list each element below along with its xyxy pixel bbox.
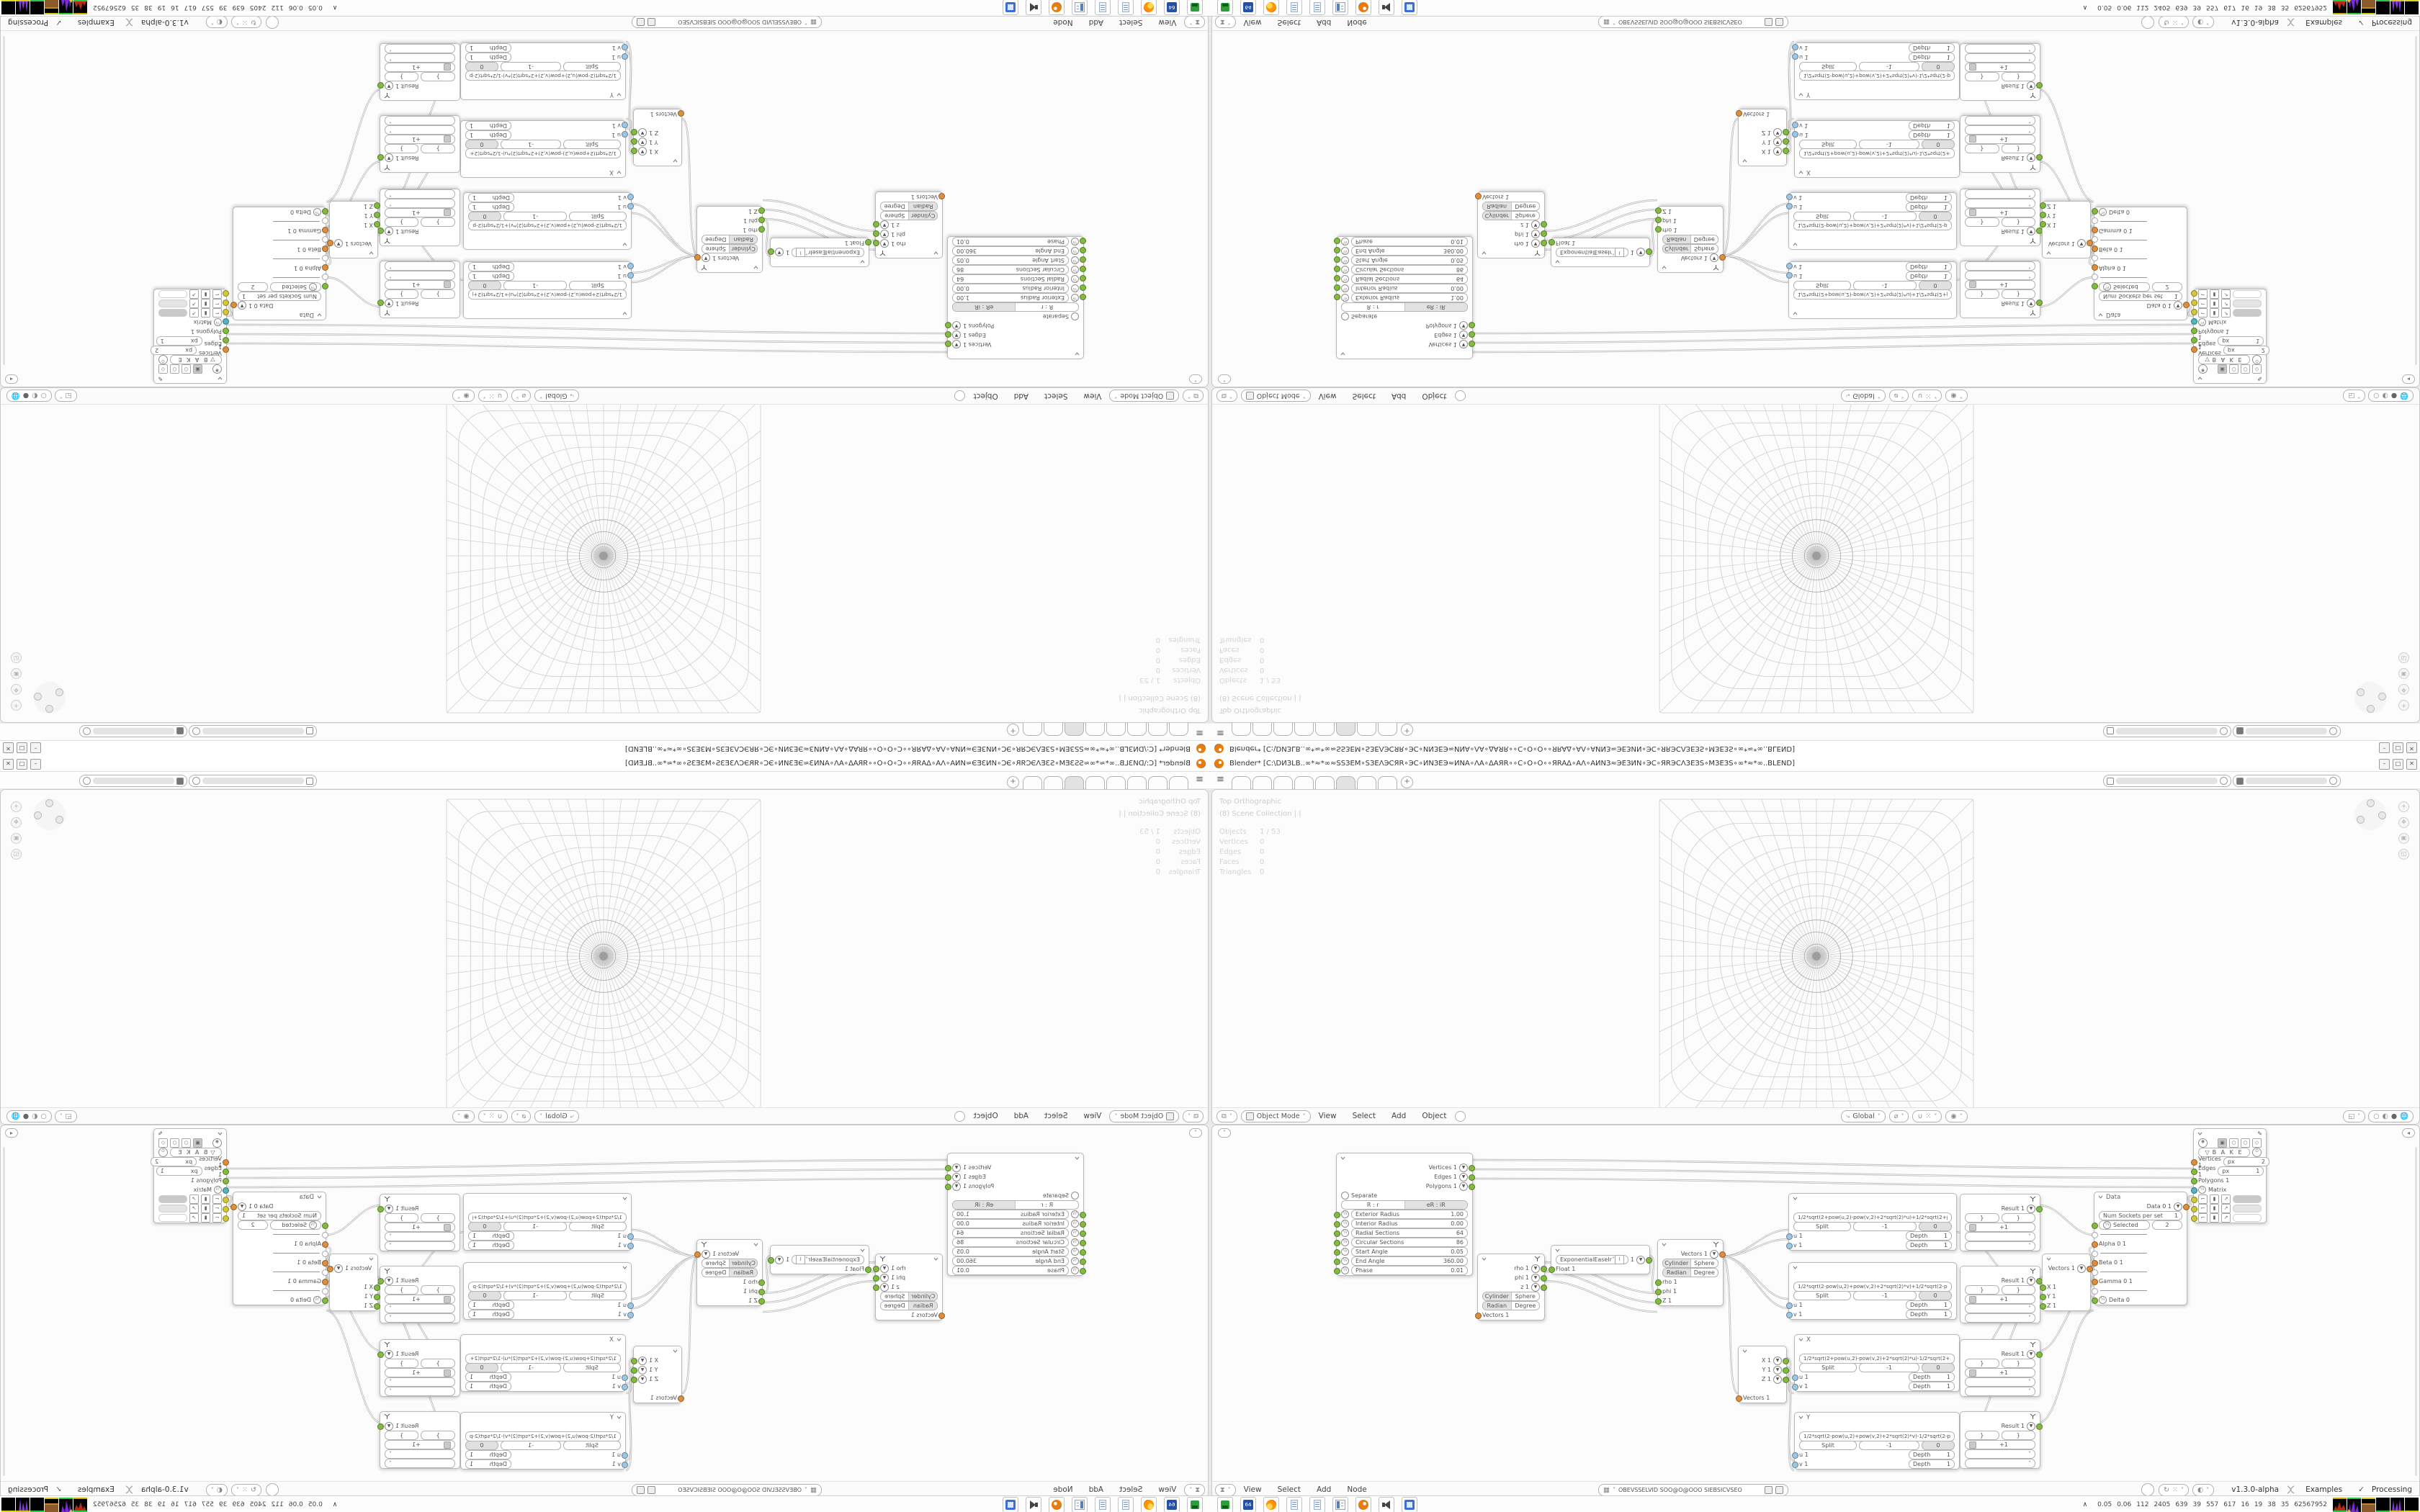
input-row[interactable]: ¼Matrix — [2194, 318, 2266, 327]
menu-view[interactable]: View — [1083, 392, 1101, 400]
socket-shape-dropdown[interactable]: ▼ — [1459, 1182, 1468, 1191]
optional-socket-row[interactable] — [233, 1248, 326, 1258]
output-row[interactable]: Z 1▼ — [634, 1374, 681, 1384]
pill-pair[interactable]: }} — [380, 1431, 460, 1440]
orange-socket[interactable] — [2092, 1279, 2098, 1285]
menu-select[interactable]: Select — [1278, 1485, 1301, 1494]
notepad-icon[interactable] — [1118, 0, 1134, 16]
input-row[interactable]: Vectors 1 — [634, 109, 681, 119]
value-field[interactable]: ¼Exterior Radius1.00 — [1337, 293, 1472, 302]
socket-shape-dropdown[interactable]: ▼ — [952, 1182, 961, 1191]
value-field[interactable]: ¼Start Angle0.05 — [1337, 256, 1472, 265]
node-sep[interactable]: X 1▼Y 1▼Z 1▼Vectors 1 — [1738, 109, 1787, 166]
output-row[interactable]: Result 1▼ — [380, 299, 460, 308]
menu-view[interactable]: View — [1319, 392, 1337, 400]
node-header[interactable]: Y — [1795, 1413, 1959, 1422]
tray-graph-purple-spikes[interactable] — [59, 1, 73, 15]
orange-socket[interactable] — [322, 1279, 328, 1285]
output-row[interactable]: Vectors 1▼ — [2043, 1264, 2090, 1273]
workspace-tab-8[interactable] — [1378, 723, 1397, 736]
node-editor-area[interactable]: Vertices 1▼Edges 1▼Polygons 1▼SeparateR … — [1211, 14, 2420, 387]
blue-monitor-icon[interactable] — [1402, 1497, 1417, 1512]
yellow-socket[interactable] — [2191, 1197, 2197, 1203]
input-row[interactable]: Beta 0 1 — [233, 245, 326, 254]
formula-field[interactable]: 1/2*sqrt(2-pow(u,2)+pow(v,2)+2*sqrt(2)*v… — [1795, 71, 1959, 81]
green-socket[interactable] — [1655, 1289, 1662, 1295]
green-socket[interactable] — [2092, 283, 2098, 289]
open-socket[interactable] — [322, 236, 328, 243]
blue-socket[interactable] — [627, 194, 634, 200]
green-socket[interactable] — [1655, 217, 1662, 223]
split-row[interactable]: Split-10 — [461, 62, 625, 71]
node-header[interactable] — [634, 1346, 681, 1356]
green-socket[interactable] — [1334, 1268, 1340, 1274]
value-field[interactable]: ¼Phase0.01 — [948, 1266, 1083, 1275]
green-socket[interactable] — [1080, 266, 1086, 272]
node-tree-datablock[interactable]: ▦˅ OBEVSSELVID SOO@O@OOO SIEBSICVSEO — [632, 17, 822, 29]
input-row[interactable]: Z 1 — [697, 1296, 762, 1305]
node-m2[interactable]: Result 1▼}}+1˅˅ — [1960, 189, 2040, 246]
editor-type-button[interactable]: ⧉˅ — [1183, 1110, 1204, 1122]
socket-shape-dropdown[interactable]: ▼ — [2027, 1422, 2035, 1431]
collapsed-row[interactable]: ˅ — [1960, 189, 2040, 199]
camera-icon[interactable]: ▣ — [2398, 668, 2409, 679]
value-field[interactable]: ¼Exterior Radius1.00 — [948, 1210, 1083, 1219]
green-socket[interactable] — [768, 248, 774, 255]
optional-socket-row[interactable] — [2094, 235, 2187, 245]
output-row[interactable]: z 1▼ — [1478, 220, 1544, 230]
collapsed-row[interactable]: ˅ — [380, 271, 460, 280]
output-row[interactable]: Data 0 1▼ — [2094, 1202, 2187, 1211]
orange-socket[interactable] — [2191, 1159, 2197, 1166]
menu-node[interactable]: Node — [1053, 18, 1072, 27]
output-row[interactable]: Result 1▼ — [380, 1276, 460, 1285]
node-header[interactable]: X — [1795, 168, 1959, 177]
yellow-socket[interactable] — [223, 300, 229, 306]
green-socket[interactable] — [1080, 256, 1086, 263]
blue-socket[interactable] — [627, 263, 634, 269]
value-field[interactable]: ¼Circular Sections86 — [948, 265, 1083, 274]
orientation-dropdown[interactable]: ⤷Global˅ — [534, 390, 579, 402]
tray-graph-purple-tall[interactable] — [2390, 1498, 2404, 1512]
scene-selector[interactable] — [189, 725, 317, 737]
spacer-row[interactable] — [1789, 300, 1956, 309]
orange-socket[interactable] — [322, 264, 328, 271]
output-row[interactable]: Result 1▼ — [380, 81, 460, 91]
green-socket[interactable] — [1334, 1259, 1340, 1265]
input-row[interactable]: v 1Depth1 — [1789, 1310, 1956, 1319]
spacer-row[interactable] — [330, 230, 377, 239]
split-row[interactable]: Split-10 — [1795, 140, 1959, 149]
green-socket[interactable] — [1469, 1165, 1475, 1171]
input-row[interactable]: Z 1 — [2043, 1301, 2090, 1310]
open-socket[interactable] — [2092, 1232, 2098, 1238]
green-socket[interactable] — [865, 239, 871, 246]
menu-hamburger-icon[interactable]: ≡ — [1216, 775, 1227, 784]
tray-graph-purple-spikes[interactable] — [2347, 1498, 2361, 1512]
node-gen[interactable]: Vertices 1▼Edges 1▼Polygons 1▼SeparateR … — [947, 1153, 1084, 1276]
orange-socket[interactable] — [322, 1241, 328, 1248]
node-header[interactable] — [1960, 1194, 2040, 1204]
green-socket[interactable] — [374, 202, 380, 209]
green-socket[interactable] — [1080, 1221, 1086, 1228]
input-row[interactable]: Gamma 0 1 — [2094, 226, 2187, 235]
firefox-icon[interactable] — [1263, 1497, 1279, 1512]
orange-socket[interactable] — [2183, 1204, 2190, 1210]
firefox-icon[interactable] — [1141, 0, 1157, 16]
grid-toggle-icon[interactable]: ◱ — [11, 652, 22, 663]
green-socket[interactable] — [1655, 226, 1662, 233]
menu-select[interactable]: Select — [1353, 392, 1376, 400]
input-row[interactable]: ¼Delta 0 — [2094, 207, 2187, 217]
node-ease[interactable]: ExponentialEaseIn˅⌇1▼Float 1 — [770, 238, 869, 267]
examples-menu[interactable]: Examples — [2305, 18, 2342, 27]
green-socket[interactable] — [1541, 1284, 1547, 1291]
examples-menu[interactable]: Examples — [78, 18, 115, 27]
snap-toggle[interactable]: ∪⁙˅ — [478, 390, 508, 402]
tray-graph-purple-spikes[interactable] — [2347, 1, 2361, 15]
green-socket[interactable] — [374, 1284, 380, 1291]
menu-add[interactable]: Add — [1014, 392, 1028, 400]
blue-socket[interactable] — [1792, 1374, 1798, 1381]
green-socket[interactable] — [1080, 1268, 1086, 1274]
output-row[interactable]: Polygons 1▼ — [1337, 1182, 1472, 1191]
node-ease[interactable]: ExponentialEaseIn˅⌇1▼Float 1 — [1551, 1245, 1650, 1274]
output-row[interactable]: Vertices 1▼ — [1337, 1163, 1472, 1172]
checkbox-row[interactable]: Separate — [948, 312, 1083, 321]
pill-pair[interactable]: }} — [380, 144, 460, 153]
value-field[interactable]: ¼Radial Sections64 — [1337, 274, 1472, 284]
green-socket[interactable] — [945, 1174, 951, 1181]
overlay-node-toggle[interactable]: ◐˅ — [206, 17, 228, 29]
collapsed-row[interactable]: ˅ — [1960, 199, 2040, 208]
green-socket[interactable] — [377, 1351, 384, 1358]
green-socket[interactable] — [1334, 1249, 1340, 1256]
orange-socket[interactable] — [223, 1159, 229, 1166]
blue-socket[interactable] — [1786, 203, 1793, 210]
green-socket[interactable] — [1783, 148, 1789, 154]
gizmo-circle-button[interactable] — [266, 1483, 279, 1496]
output-row[interactable]: Result 1▼ — [380, 1421, 460, 1431]
node-comb[interactable]: Vectors 1▼X 1Y 1Z 1 — [2042, 201, 2091, 258]
cyan-socket[interactable] — [223, 1187, 229, 1194]
input-row[interactable]: v 1Depth1 — [461, 43, 625, 53]
blue-socket[interactable] — [627, 1312, 634, 1318]
open-socket[interactable] — [322, 1251, 328, 1257]
node-ease[interactable]: ExponentialEaseIn˅⌇1▼Float 1 — [770, 1245, 869, 1274]
spacer-row[interactable] — [461, 81, 625, 90]
workspace-tab-2[interactable] — [1252, 776, 1272, 789]
formula-field[interactable]: 1/2*sqrt(2+pow(u,2)-pow(v,2)+2*sqrt(2)*u… — [1789, 1212, 1956, 1222]
yellow-socket[interactable] — [2191, 300, 2197, 306]
blue-socket[interactable] — [1792, 53, 1798, 60]
node-header[interactable]: Data — [233, 310, 326, 320]
input-row[interactable]: Edges 1px1 — [2194, 1166, 2266, 1176]
node-m4[interactable]: Result 1▼}}+1˅˅ — [380, 1411, 460, 1469]
pin-icon[interactable] — [1775, 19, 1783, 27]
tray-graph-brown-block[interactable] — [45, 1, 58, 15]
pill-pair[interactable]: }} — [1960, 289, 2040, 299]
input-row[interactable]: v 1Depth1 — [1789, 262, 1956, 271]
formula-field[interactable]: 1/2*sqrt(2+pow(u,2)-pow(v,2)+2*sqrt(2)*u… — [1795, 149, 1959, 158]
display-toggles[interactable]: ◉▣○○◇ — [154, 364, 226, 374]
workspace-tab-6[interactable] — [1065, 776, 1084, 789]
spacer-row[interactable] — [634, 119, 681, 128]
open-socket[interactable] — [2092, 274, 2098, 280]
green-socket[interactable] — [377, 1278, 384, 1284]
pill-pair[interactable]: }} — [1960, 1431, 2040, 1440]
workspace-tab-7[interactable] — [1044, 776, 1063, 789]
node-header[interactable]: Data — [2094, 310, 2187, 320]
value-field[interactable]: ¼Interior Radius0.00 — [1337, 284, 1472, 293]
sidebar-tab-icon[interactable]: ◂ — [2402, 1128, 2415, 1138]
green-device-icon[interactable] — [1217, 0, 1233, 16]
input-row[interactable]: Float 1 — [771, 1264, 869, 1274]
workspace-tab-4[interactable] — [1294, 776, 1314, 789]
collapsed-row[interactable]: ˅ — [380, 261, 460, 271]
green-socket[interactable] — [1541, 1266, 1547, 1272]
value-field[interactable]: ¼Circular Sections86 — [948, 1238, 1083, 1247]
output-row[interactable]: Z 1▼ — [1739, 1374, 1786, 1384]
socket-shape-dropdown[interactable]: ▼ — [638, 148, 647, 156]
input-row[interactable]: Vectors 1 — [1478, 192, 1544, 202]
green-socket[interactable] — [945, 1184, 951, 1190]
optional-socket-row[interactable] — [233, 1286, 326, 1295]
tray-chevron-icon[interactable]: ∧ — [333, 4, 338, 12]
split-row[interactable]: Split-10 — [461, 140, 625, 149]
title-bar[interactable]: Blender* [C:\DИЗLB..∞*≈*∞≈SSЗEM∘SЗEΛЭCЯR… — [0, 740, 1210, 756]
menu-select[interactable]: Select — [1044, 392, 1067, 400]
input-row[interactable]: u 1Depth1 — [461, 1372, 625, 1382]
editor-type-button[interactable]: ⧉˅ — [1216, 1110, 1237, 1122]
menu-view[interactable]: View — [1244, 18, 1262, 27]
input-row[interactable]: v 1Depth1 — [464, 1241, 631, 1250]
green-socket[interactable] — [631, 1358, 637, 1364]
yellow-socket[interactable] — [223, 1206, 229, 1212]
scene-search-icon[interactable] — [192, 727, 200, 735]
green-socket[interactable] — [1080, 1259, 1086, 1265]
easing-row[interactable]: ExponentialEaseIn˅⌇1▼ — [1551, 1255, 1649, 1264]
input-row[interactable]: v 1Depth1 — [461, 121, 625, 130]
pill-pair[interactable]: }} — [380, 289, 460, 299]
green-socket[interactable] — [377, 228, 384, 234]
input-row[interactable]: ¼Matrix — [154, 318, 226, 327]
spacer-row[interactable] — [1739, 119, 1786, 128]
segmented-buttons[interactable]: RadianDegree — [1658, 235, 1723, 244]
node-m3[interactable]: Result 1▼}}+1˅˅ — [380, 1339, 460, 1397]
split-row[interactable]: Split-10 — [1789, 212, 1956, 221]
input-row[interactable]: Edges 1px1 — [154, 336, 226, 346]
segmented-buttons[interactable]: R : reR : iR — [1337, 302, 1472, 312]
breadcrumb-collapse-icon[interactable]: ˅ — [1218, 1128, 1231, 1138]
input-row[interactable]: v 1Depth1 — [1795, 121, 1959, 130]
value-field[interactable]: ¼Circular Sections86 — [1337, 1238, 1472, 1247]
blue-socket[interactable] — [1786, 1243, 1793, 1249]
green-socket[interactable] — [1334, 1221, 1340, 1228]
socket-shape-dropdown[interactable]: ▼ — [2077, 1264, 2086, 1273]
node-m2[interactable]: Result 1▼}}+1˅˅ — [380, 189, 460, 246]
pill-pair[interactable]: }} — [1960, 72, 2040, 81]
output-row[interactable]: Y 1▼ — [634, 1365, 681, 1374]
green-socket[interactable] — [1334, 1230, 1340, 1237]
collapsed-row[interactable]: ˅ — [1960, 1232, 2040, 1241]
speaker-icon[interactable] — [1026, 0, 1041, 16]
blue-socket[interactable] — [622, 44, 628, 50]
green-socket[interactable] — [2191, 328, 2197, 334]
node-header[interactable] — [2043, 1254, 2090, 1264]
orientation-dropdown[interactable]: ⤷Global˅ — [1841, 390, 1886, 402]
spacer-row[interactable] — [464, 300, 631, 309]
formula-field[interactable]: 1/2*sqrt(2+pow(u,2)-pow(v,2)+2*sqrt(2)*u… — [461, 1354, 625, 1363]
input-row[interactable]: u 1Depth1 — [1789, 202, 1956, 212]
fake-user-icon[interactable] — [1765, 19, 1773, 27]
scrollbar[interactable] — [3, 36, 5, 365]
socket-shape-dropdown[interactable]: ▼ — [2027, 82, 2035, 91]
segmented-buttons[interactable]: RadianDegree — [1658, 1268, 1723, 1277]
green-socket[interactable] — [758, 217, 765, 223]
green-socket[interactable] — [873, 1266, 879, 1272]
open-socket[interactable] — [322, 1288, 328, 1295]
notepad-icon[interactable] — [1309, 0, 1325, 16]
selected-row[interactable]: ¼Selected2 — [233, 1220, 326, 1230]
socket-shape-dropdown[interactable]: ▼ — [1459, 331, 1468, 340]
output-row[interactable]: Y 1▼ — [1739, 138, 1786, 147]
value-field[interactable]: Num Sockets per set1 — [233, 1211, 326, 1220]
green-socket[interactable] — [2040, 1284, 2046, 1291]
viewport-area[interactable]: Top Orthographic(8) Scene Collection | |… — [1211, 387, 2420, 723]
material-row[interactable]: ⌐▮↗ — [2194, 299, 2266, 308]
node-header[interactable]: ✎ — [154, 1129, 226, 1138]
collapsed-row[interactable]: ˅ — [380, 1387, 460, 1396]
segmented-buttons[interactable]: RadianDegree — [876, 202, 942, 211]
input-row[interactable]: u 1Depth1 — [1789, 1300, 1956, 1310]
tray-graph-brown-block[interactable] — [2362, 1498, 2375, 1512]
optional-socket-row[interactable] — [2094, 1248, 2187, 1258]
green-socket[interactable] — [1655, 207, 1662, 214]
stepper-field[interactable]: +1 — [380, 1295, 460, 1304]
overlays-toggle[interactable]: ◱˅ — [2343, 1110, 2365, 1122]
node-header[interactable] — [1960, 163, 2040, 172]
socket-shape-dropdown[interactable]: ▼ — [2027, 300, 2035, 308]
add-workspace-button[interactable]: + — [1401, 776, 1413, 788]
socket-shape-dropdown[interactable]: ▼ — [1531, 230, 1540, 239]
node-m2[interactable]: Result 1▼}}+1˅˅ — [1960, 1266, 2040, 1323]
green-socket[interactable] — [1783, 1377, 1789, 1383]
stepper-field[interactable]: +1 — [1960, 135, 2040, 144]
input-row[interactable]: Alpha 0 1 — [233, 264, 326, 273]
collapsed-row[interactable]: ˅ — [380, 1304, 460, 1313]
scene-search-icon[interactable] — [2220, 727, 2228, 735]
spacer-row[interactable] — [2043, 230, 2090, 239]
node-header[interactable] — [1960, 236, 2040, 246]
orange-socket[interactable] — [694, 1251, 701, 1258]
green-socket[interactable] — [1655, 1298, 1662, 1305]
input-row[interactable]: Edges 1px1 — [2194, 336, 2266, 346]
green-socket[interactable] — [374, 221, 380, 228]
green-socket[interactable] — [1334, 1212, 1340, 1218]
output-row[interactable]: Vectors 1▼ — [1658, 1249, 1723, 1259]
active-tool-icon[interactable] — [1455, 391, 1466, 402]
collapsed-row[interactable]: ˅ — [380, 189, 460, 199]
green-socket[interactable] — [631, 1377, 637, 1383]
breadcrumb-collapse-icon[interactable]: ˅ — [1218, 374, 1231, 384]
split-row[interactable]: Split-10 — [1789, 1291, 1956, 1300]
socket-shape-dropdown[interactable]: ▼ — [952, 331, 961, 340]
socket-shape-dropdown[interactable]: ▼ — [2027, 1277, 2035, 1285]
green-socket[interactable] — [2092, 1297, 2098, 1304]
checkbox-row[interactable]: Separate — [1337, 1191, 1472, 1200]
node-m3[interactable]: Result 1▼}}+1˅˅ — [1960, 115, 2040, 173]
green-socket[interactable] — [1646, 248, 1652, 255]
stepper-field[interactable]: +1 — [380, 63, 460, 72]
material-row[interactable]: ⌐▮↗ — [154, 1194, 226, 1204]
yellow-socket[interactable] — [2191, 309, 2197, 315]
easing-row[interactable]: ExponentialEaseIn˅⌇1▼ — [771, 1255, 869, 1264]
menu-add[interactable]: Add — [1391, 392, 1406, 400]
collapsed-row[interactable]: ˅ — [380, 125, 460, 135]
output-row[interactable]: phi 1▼ — [1478, 1273, 1544, 1282]
input-row[interactable]: Z 1 — [1658, 207, 1723, 216]
node-header[interactable]: ✎ — [2194, 374, 2266, 383]
socket-shape-dropdown[interactable]: ▼ — [385, 1422, 393, 1431]
title-bar[interactable]: Blender* [C:\DИЗLB..∞*≈*∞≈SSЗEM∘SЗEΛЭCЯR… — [1210, 756, 2420, 772]
node-data[interactable]: DataData 0 1▼Num Sockets per set1¼Select… — [233, 1192, 326, 1305]
node-header[interactable] — [464, 240, 631, 249]
input-row[interactable]: Z 1 — [1658, 1296, 1723, 1305]
blue-socket[interactable] — [627, 1243, 634, 1249]
cyan-socket[interactable] — [223, 318, 229, 325]
navigation-gizmo[interactable] — [34, 798, 66, 830]
green-socket[interactable] — [2036, 154, 2043, 161]
value-field[interactable]: ¼Radial Sections64 — [948, 274, 1083, 284]
node-fy[interactable]: Y1/2*sqrt(2-pow(u,2)+pow(v,2)+2*sqrt(2)*… — [1794, 1412, 1960, 1470]
viewlayer-selector[interactable] — [79, 775, 187, 787]
spacer-row[interactable] — [1795, 158, 1959, 168]
orange-socket[interactable] — [2092, 264, 2098, 271]
editor-type-button[interactable]: ⧗˅ — [1215, 17, 1236, 29]
socket-shape-dropdown[interactable]: ▼ — [1773, 129, 1782, 138]
formula-field[interactable]: 1/2*sqrt(2+pow(u,2)-pow(v,2)+2*sqrt(2)*u… — [464, 1212, 631, 1222]
node-fv[interactable]: 1/2*sqrt(2-pow(u,2)+pow(v,2)+2*sqrt(2)*v… — [1788, 1262, 1957, 1320]
blue-socket[interactable] — [1792, 1462, 1798, 1468]
blue-socket[interactable] — [1792, 122, 1798, 128]
maximize-button[interactable]: □ — [2393, 759, 2403, 770]
blue-socket[interactable] — [622, 1374, 628, 1381]
node-m4[interactable]: Result 1▼}}+1˅˅ — [1960, 43, 2040, 101]
green-socket[interactable] — [322, 208, 328, 215]
shading-mode-buttons[interactable]: ○◐●🌐 — [6, 390, 52, 402]
stepper-field[interactable]: +1 — [380, 280, 460, 289]
scrollbar[interactable] — [2415, 1147, 2417, 1476]
minimize-button[interactable]: – — [30, 742, 41, 753]
socket-shape-dropdown[interactable]: ▼ — [385, 1350, 393, 1359]
node-header[interactable]: Y — [461, 90, 625, 99]
viewlayer-search-icon[interactable] — [83, 777, 91, 785]
material-row[interactable]: ⌐▮↗ — [2194, 1213, 2266, 1223]
input-row[interactable]: Vectors 1 — [1478, 1310, 1544, 1320]
yellow-socket[interactable] — [2191, 1215, 2197, 1222]
socket-shape-dropdown[interactable]: ▼ — [2174, 302, 2182, 310]
node-fv[interactable]: 1/2*sqrt(2-pow(u,2)+pow(v,2)+2*sqrt(2)*v… — [463, 1262, 632, 1320]
workspace-tab-3[interactable] — [1273, 723, 1293, 736]
node-header[interactable] — [464, 1194, 631, 1203]
node-comb[interactable]: Vectors 1▼X 1Y 1Z 1 — [2042, 1254, 2091, 1311]
proportional-edit-toggle[interactable]: ◉˅ — [1945, 390, 1967, 402]
input-row[interactable]: u 1Depth1 — [1795, 1450, 1959, 1459]
orange-socket[interactable] — [2092, 1241, 2098, 1248]
stepper-field[interactable]: +1 — [380, 135, 460, 144]
spacer-row[interactable] — [1795, 81, 1959, 90]
